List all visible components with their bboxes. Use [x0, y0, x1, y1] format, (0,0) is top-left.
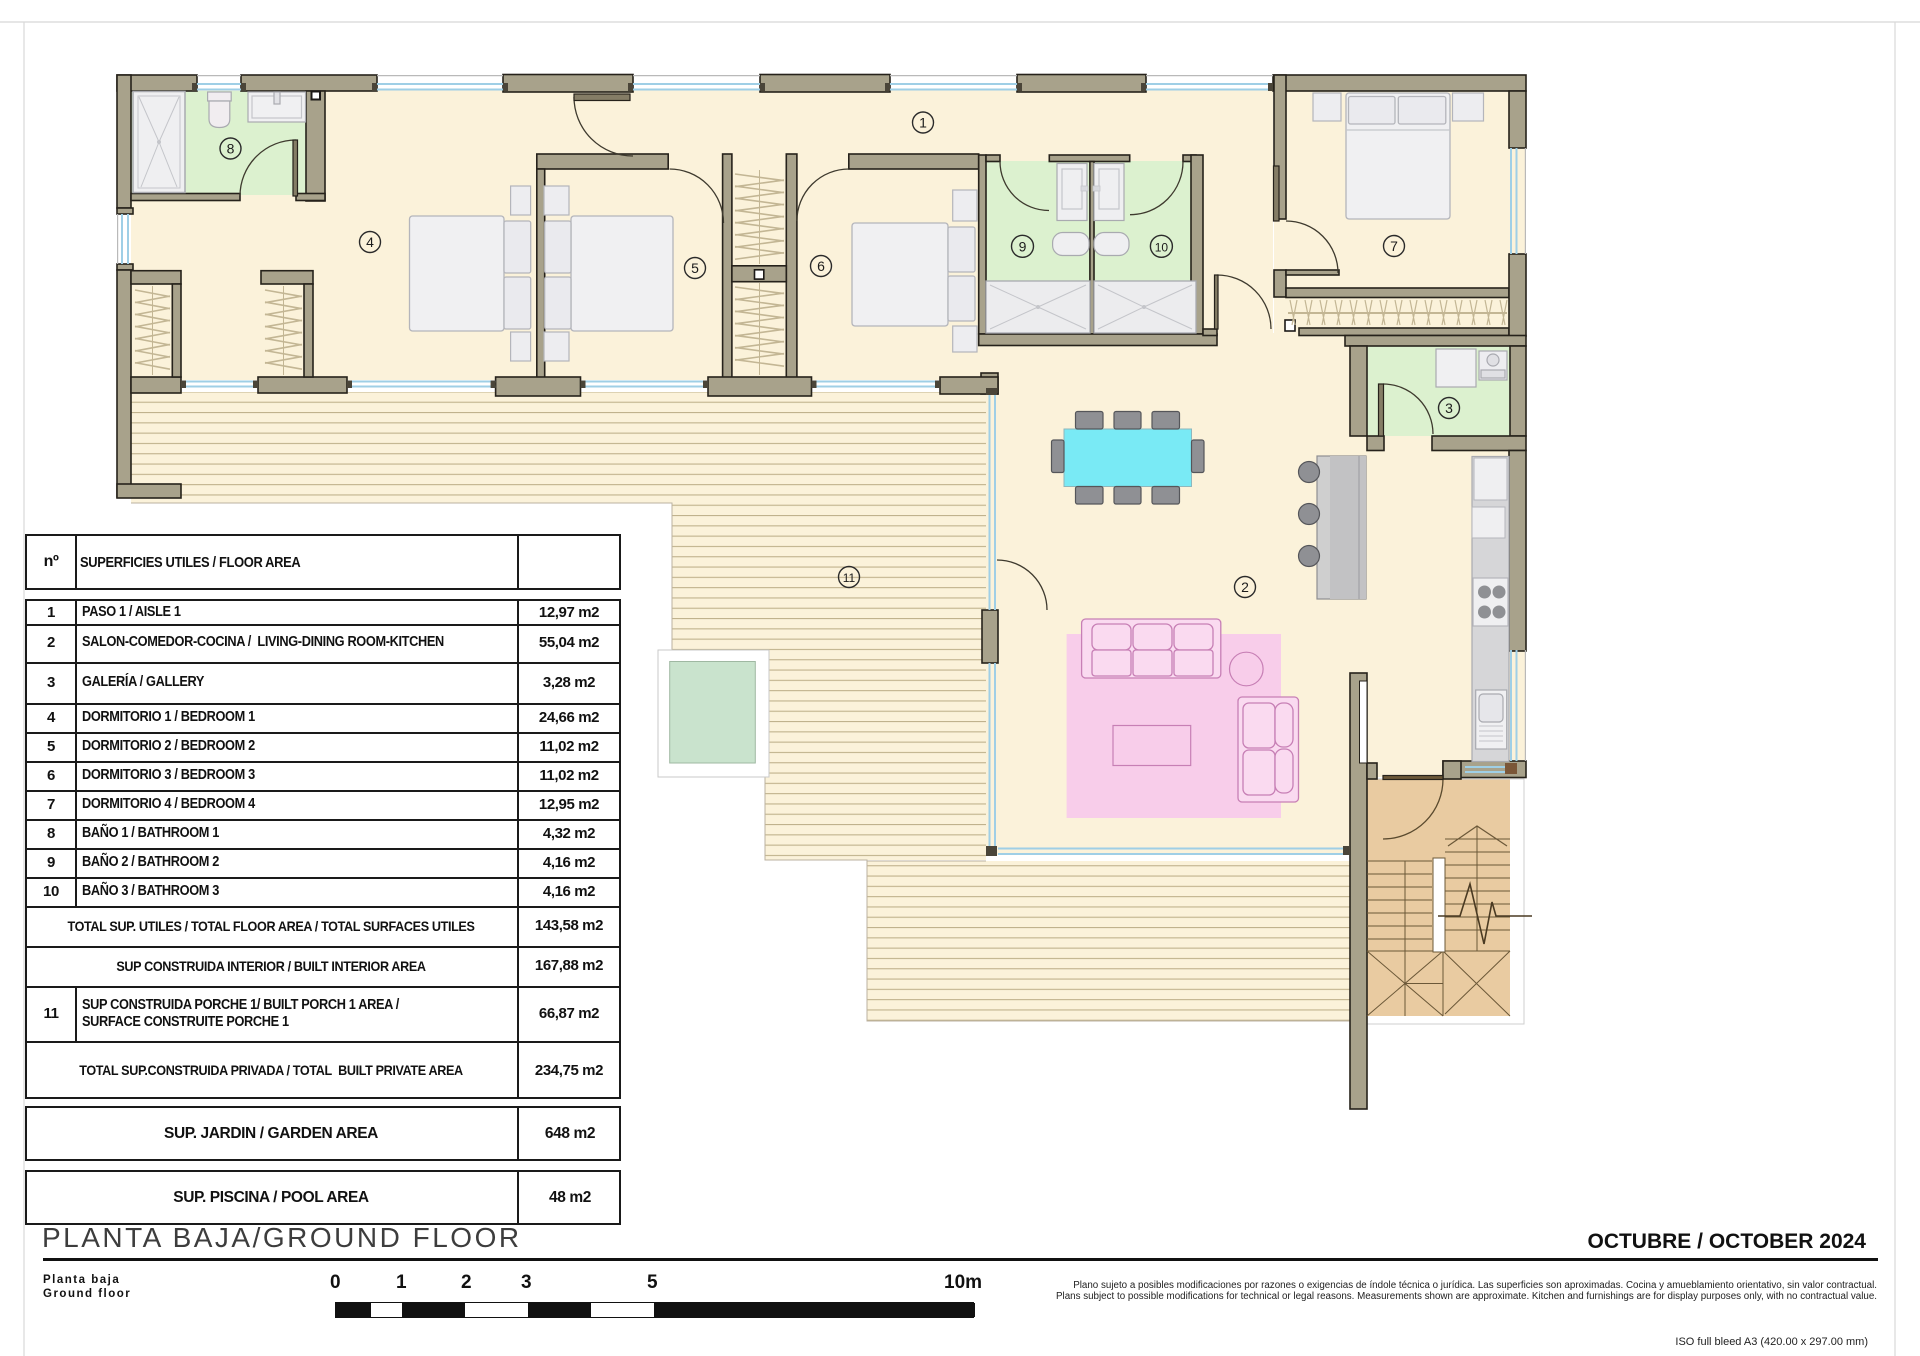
svg-text:7: 7 — [1390, 238, 1398, 254]
svg-text:4: 4 — [366, 234, 374, 250]
svg-text:1: 1 — [919, 115, 927, 131]
svg-text:10: 10 — [1155, 240, 1169, 254]
svg-text:3: 3 — [1445, 400, 1453, 416]
svg-text:6: 6 — [817, 258, 825, 274]
svg-text:2: 2 — [1241, 579, 1249, 595]
svg-text:8: 8 — [227, 141, 235, 157]
svg-text:11: 11 — [843, 571, 856, 585]
svg-text:5: 5 — [691, 260, 699, 276]
svg-text:9: 9 — [1019, 238, 1027, 254]
